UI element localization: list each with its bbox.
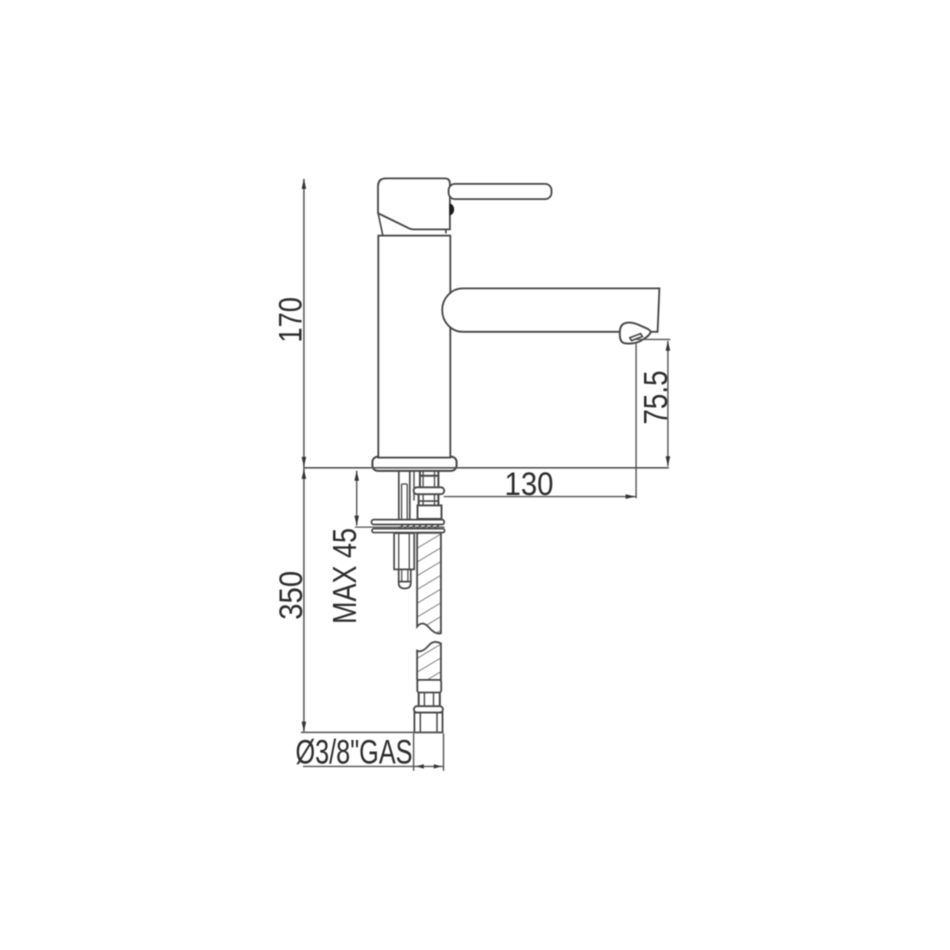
svg-text:170: 170 — [273, 297, 309, 343]
svg-text:350: 350 — [273, 571, 309, 620]
svg-text:Ø3/8"GAS: Ø3/8"GAS — [296, 734, 413, 772]
svg-text:MAX 45: MAX 45 — [327, 528, 364, 624]
svg-text:75.5: 75.5 — [638, 371, 675, 425]
svg-text:130: 130 — [505, 466, 554, 502]
